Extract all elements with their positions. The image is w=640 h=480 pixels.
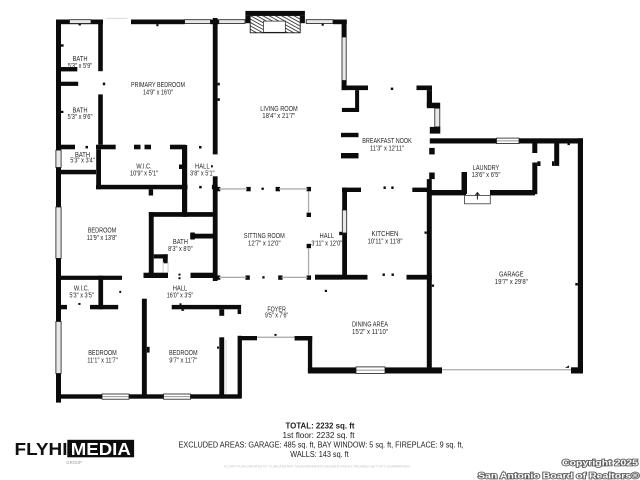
svg-text:GARAGE: GARAGE xyxy=(499,272,524,279)
svg-text:Copyright 2025: Copyright 2025 xyxy=(562,458,638,468)
svg-text:11'1" x 11'7": 11'1" x 11'7" xyxy=(87,357,118,364)
svg-text:BATH: BATH xyxy=(173,239,188,246)
svg-text:SITTING ROOM: SITTING ROOM xyxy=(244,233,285,240)
svg-text:KITCHEN: KITCHEN xyxy=(372,231,399,238)
svg-text:5'3" x 3'5": 5'3" x 3'5" xyxy=(69,292,94,299)
svg-text:11'9" x 13'8": 11'9" x 13'8" xyxy=(87,235,118,242)
svg-text:HALL: HALL xyxy=(320,233,335,240)
svg-text:3'11" x 12'0": 3'11" x 12'0" xyxy=(311,240,342,247)
svg-text:BEDROOM: BEDROOM xyxy=(88,350,117,357)
svg-text:MEDIA: MEDIA xyxy=(71,439,131,459)
svg-text:BREAKFAST NOOK: BREAKFAST NOOK xyxy=(362,138,412,145)
svg-text:1st floor: 2232 sq. ft: 1st floor: 2232 sq. ft xyxy=(283,431,356,440)
svg-text:LIVING ROOM: LIVING ROOM xyxy=(260,106,298,113)
svg-text:5'3" x 3'4": 5'3" x 3'4" xyxy=(70,158,95,165)
svg-text:BEDROOM: BEDROOM xyxy=(169,350,198,357)
svg-text:5'3" x 5'9": 5'3" x 5'9" xyxy=(68,63,93,70)
svg-text:11'3" x 12'11": 11'3" x 12'11" xyxy=(370,146,404,153)
svg-text:12'7" x 12'0": 12'7" x 12'0" xyxy=(248,240,281,247)
svg-text:19'7" x 29'8": 19'7" x 29'8" xyxy=(495,279,528,286)
svg-text:FLOOR PLAN CREATED BY CUBICASA: FLOOR PLAN CREATED BY CUBICASA APP. MEAS… xyxy=(224,464,410,469)
svg-text:TOTAL: 2232 sq. ft: TOTAL: 2232 sq. ft xyxy=(286,422,355,431)
svg-text:PRIMARY BEDROOM: PRIMARY BEDROOM xyxy=(131,82,185,89)
svg-text:5'3" x 9'6": 5'3" x 9'6" xyxy=(68,114,93,121)
svg-text:EXCLUDED AREAS: GARAGE: 485 sq: EXCLUDED AREAS: GARAGE: 485 sq. ft, BAY … xyxy=(179,440,464,449)
svg-text:GROUP: GROUP xyxy=(66,460,82,465)
svg-text:13'6" x 6'5": 13'6" x 6'5" xyxy=(472,172,501,179)
svg-text:8'3" x 8'0": 8'3" x 8'0" xyxy=(168,246,193,253)
svg-text:LAUNDRY: LAUNDRY xyxy=(473,165,500,172)
svg-text:9'7" x 11'7": 9'7" x 11'7" xyxy=(169,357,197,364)
svg-text:14'9" x 16'0": 14'9" x 16'0" xyxy=(143,90,173,97)
svg-text:10'11" x 11'8": 10'11" x 11'8" xyxy=(368,238,403,245)
svg-text:FLYHI: FLYHI xyxy=(15,439,68,459)
svg-text:10'9" x 5'1": 10'9" x 5'1" xyxy=(130,170,158,177)
svg-text:3'8" x 5'1": 3'8" x 5'1" xyxy=(190,170,215,177)
svg-text:18'4" x 21'7": 18'4" x 21'7" xyxy=(262,113,295,120)
svg-text:BEDROOM: BEDROOM xyxy=(88,228,117,235)
svg-text:WALLS: 143 sq. ft: WALLS: 143 sq. ft xyxy=(290,450,349,459)
svg-text:DINING AREA: DINING AREA xyxy=(352,322,388,329)
svg-text:San Antonio Board of Realtors®: San Antonio Board of Realtors® xyxy=(478,471,640,480)
svg-text:W.I.C.: W.I.C. xyxy=(74,285,90,292)
svg-text:9'5" x 7'6": 9'5" x 7'6" xyxy=(265,313,289,320)
svg-text:HALL: HALL xyxy=(173,285,188,292)
svg-text:16'0" x 3'5": 16'0" x 3'5" xyxy=(167,292,194,299)
svg-text:15'2" x 11'10": 15'2" x 11'10" xyxy=(352,329,388,336)
